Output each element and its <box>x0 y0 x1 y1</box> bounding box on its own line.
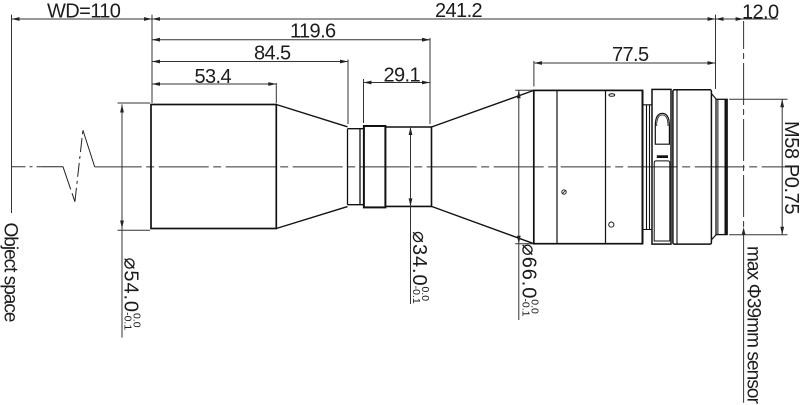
svg-text:⌀34.00.0-0.1: ⌀34.00.0-0.1 <box>408 231 431 304</box>
svg-text:84.5: 84.5 <box>254 43 291 65</box>
svg-text:⌀54.00.0-0.1: ⌀54.00.0-0.1 <box>119 258 142 331</box>
svg-text:M58 P0.75: M58 P0.75 <box>780 121 801 214</box>
svg-text:29.1: 29.1 <box>384 65 421 87</box>
svg-text:77.5: 77.5 <box>612 44 649 66</box>
svg-text:119.6: 119.6 <box>290 21 336 43</box>
svg-text:53.4: 53.4 <box>195 66 232 88</box>
svg-text:max Φ39mm sensor: max Φ39mm sensor <box>743 246 764 405</box>
svg-text:241.2: 241.2 <box>435 0 483 22</box>
svg-text:12.0: 12.0 <box>742 2 779 24</box>
svg-text:WD=110: WD=110 <box>47 1 121 23</box>
svg-text:Object space: Object space <box>0 223 21 322</box>
svg-text:⌀66.00.0-0.1: ⌀66.00.0-0.1 <box>518 244 541 317</box>
